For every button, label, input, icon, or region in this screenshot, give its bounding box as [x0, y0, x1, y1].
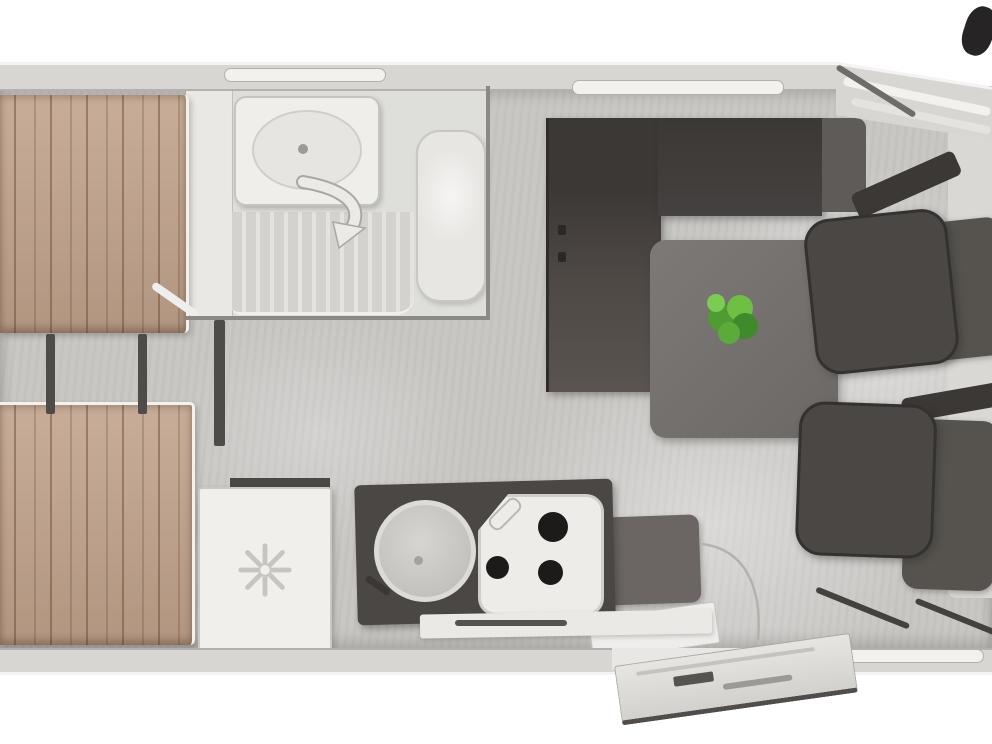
driver-seat [782, 384, 992, 641]
hob-burner-2 [486, 556, 509, 579]
snowflake-icon [236, 541, 294, 599]
sink-drain [414, 556, 423, 565]
window-rear-top [224, 68, 386, 82]
floorplan-canvas [0, 0, 992, 744]
fridge [198, 487, 332, 652]
wing-mirror [957, 3, 992, 60]
hob-burner-1 [538, 512, 568, 542]
wardrobe-hinge-1 [558, 225, 566, 235]
bathroom-wall-right [486, 86, 490, 320]
passenger-backrest [802, 207, 962, 377]
seat-rail-2 [915, 598, 992, 637]
plant-icon [704, 288, 760, 350]
door-swing-arrow-icon [295, 172, 395, 250]
passenger-seat [789, 156, 992, 400]
bed-lower [0, 402, 195, 645]
basin-tap [298, 144, 308, 154]
window-dinette-top [572, 80, 784, 95]
ladder-rail-3 [214, 320, 225, 446]
bathroom-cabinet [186, 86, 233, 318]
driver-backrest [794, 401, 937, 560]
ledge-vent-slot [455, 620, 567, 626]
kitchen-sink [374, 500, 476, 602]
ladder-rail-2 [138, 334, 147, 414]
toilet [416, 130, 486, 302]
wardrobe-hinge-2 [558, 252, 566, 262]
ladder-rail-1 [46, 334, 55, 414]
door-window-slit [673, 671, 714, 686]
door-handle-slit [723, 674, 793, 690]
hob-burner-3 [538, 560, 563, 585]
bed-upper [0, 95, 189, 333]
seat-rail-1 [815, 587, 910, 630]
bathroom-wall-bottom [186, 316, 490, 320]
